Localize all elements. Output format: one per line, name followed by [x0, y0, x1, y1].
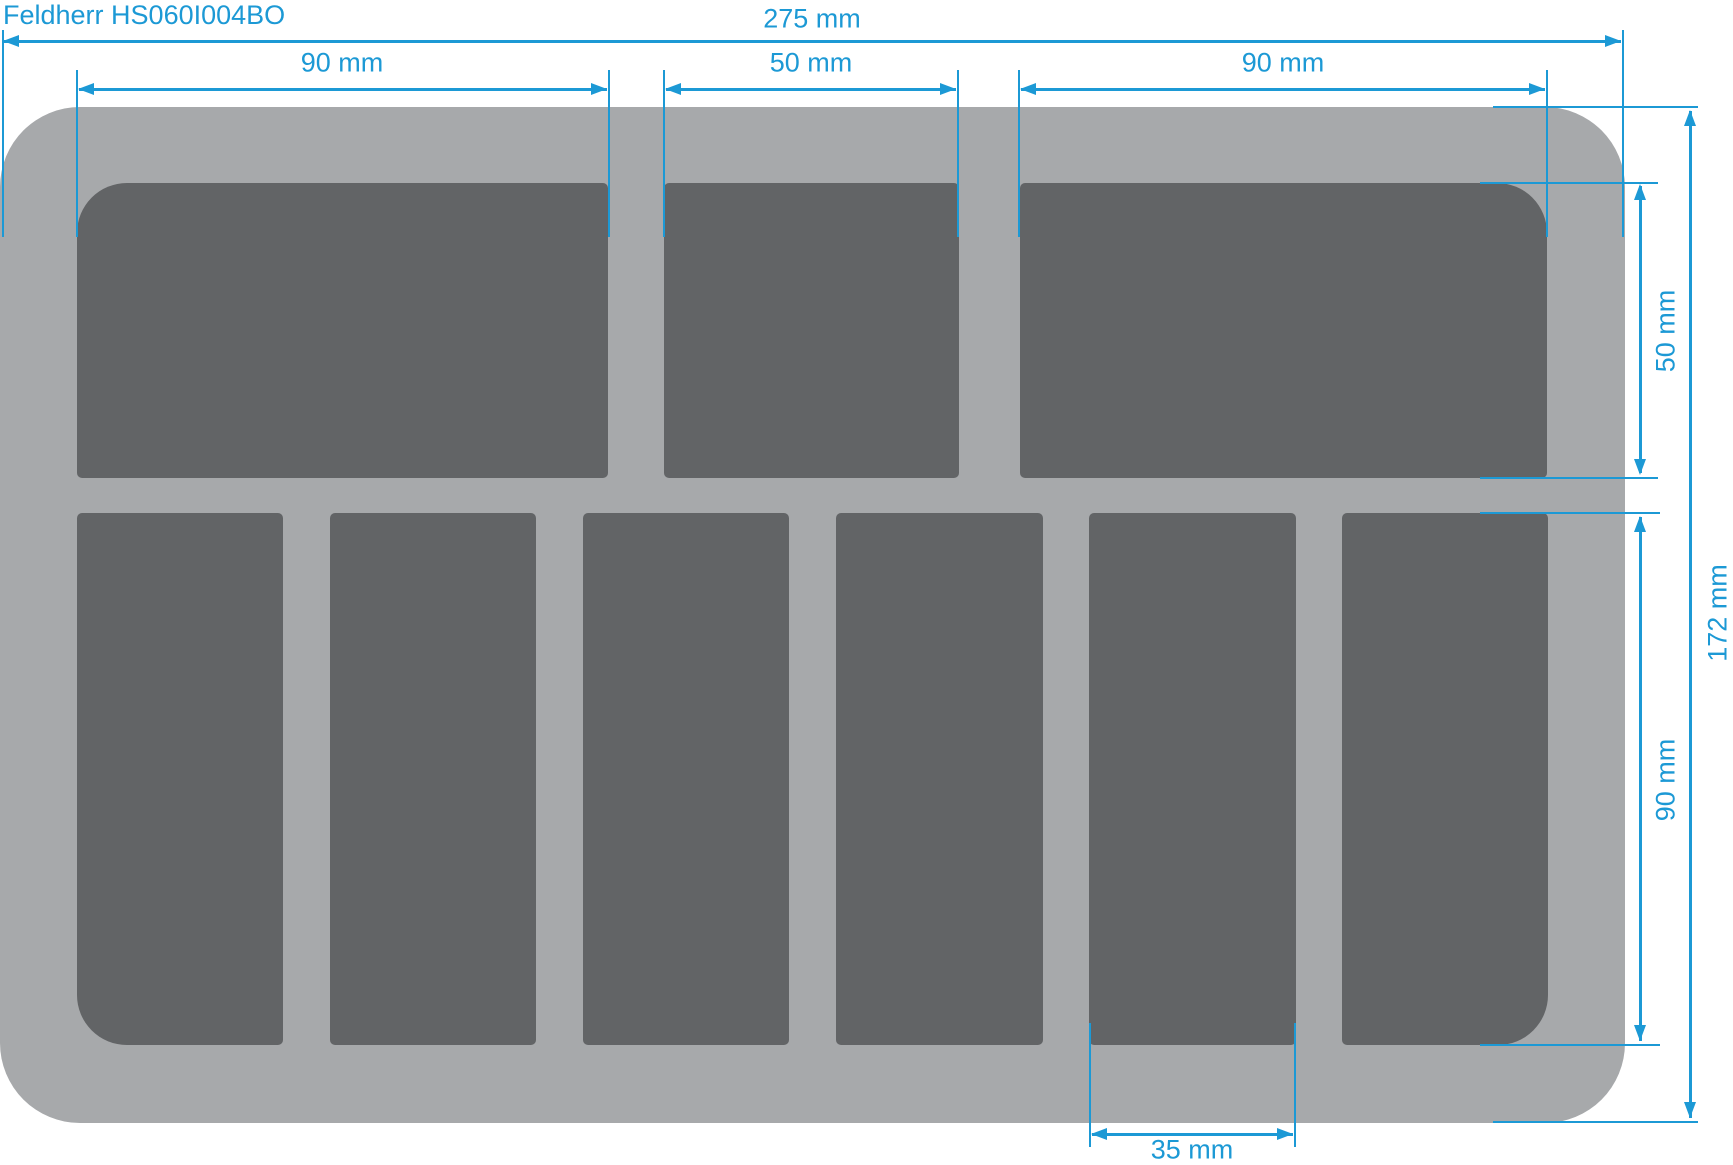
- compartment-bottom-6: [1342, 513, 1548, 1045]
- arrowhead-down-icon: [1684, 1102, 1696, 1118]
- extension-line: [2, 30, 4, 237]
- arrowhead-left-icon: [78, 83, 94, 95]
- arrowhead-up-icon: [1634, 516, 1646, 532]
- compartment-bottom-3: [583, 513, 789, 1045]
- arrowhead-right-icon: [940, 83, 956, 95]
- dim-label-top-right-width: 90 mm: [1242, 50, 1325, 77]
- arrowhead-right-icon: [591, 83, 607, 95]
- dim-label-bottom-row-height: 90 mm: [1653, 739, 1680, 822]
- dimension-line: [666, 88, 956, 91]
- extension-line: [608, 70, 610, 237]
- extension-line: [1480, 512, 1660, 514]
- extension-line: [1480, 182, 1658, 184]
- extension-line: [663, 70, 665, 237]
- extension-line: [1622, 30, 1624, 237]
- compartment-top-middle: [664, 183, 959, 478]
- extension-line: [957, 70, 959, 237]
- arrowhead-down-icon: [1634, 459, 1646, 475]
- extension-line: [1018, 70, 1020, 237]
- arrowhead-down-icon: [1634, 1025, 1646, 1041]
- arrowhead-right-icon: [1605, 35, 1621, 47]
- arrowhead-right-icon: [1529, 83, 1545, 95]
- dim-label-bottom-compartment-width: 35 mm: [1151, 1137, 1234, 1164]
- extension-line: [1294, 1023, 1296, 1147]
- dimension-line: [79, 88, 607, 91]
- extension-line: [76, 70, 78, 237]
- arrowhead-right-icon: [1277, 1128, 1293, 1140]
- dimension-line: [1639, 517, 1642, 1041]
- dim-label-total-height: 172 mm: [1705, 564, 1732, 662]
- compartment-bottom-1: [77, 513, 283, 1045]
- arrowhead-left-icon: [3, 35, 19, 47]
- foam-tray-outline: [0, 107, 1625, 1123]
- extension-line: [1493, 106, 1698, 108]
- diagram-page: { "title": "Feldherr HS060I004BO", "colo…: [0, 0, 1733, 1163]
- extension-line: [1480, 1044, 1660, 1046]
- compartment-top-right: [1020, 183, 1547, 478]
- extension-line: [1480, 477, 1658, 479]
- arrowhead-up-icon: [1634, 184, 1646, 200]
- dimension-line: [1021, 88, 1545, 91]
- dimension-line: [1639, 186, 1642, 473]
- dimension-line: [1689, 111, 1692, 1118]
- arrowhead-left-icon: [1020, 83, 1036, 95]
- extension-line: [1546, 70, 1548, 237]
- arrowhead-up-icon: [1684, 110, 1696, 126]
- dim-label-top-left-width: 90 mm: [301, 50, 384, 77]
- dim-label-top-row-height: 50 mm: [1653, 290, 1680, 373]
- arrowhead-left-icon: [1091, 1128, 1107, 1140]
- compartment-bottom-2: [330, 513, 536, 1045]
- arrowhead-left-icon: [665, 83, 681, 95]
- dim-label-total-width: 275 mm: [763, 6, 861, 33]
- compartment-bottom-4: [836, 513, 1043, 1045]
- page-title: Feldherr HS060I004BO: [3, 1, 285, 31]
- compartment-bottom-5: [1089, 513, 1296, 1045]
- dimension-line: [4, 40, 1621, 43]
- extension-line: [1493, 1121, 1698, 1123]
- dim-label-top-middle-width: 50 mm: [770, 50, 853, 77]
- compartment-top-left: [77, 183, 608, 478]
